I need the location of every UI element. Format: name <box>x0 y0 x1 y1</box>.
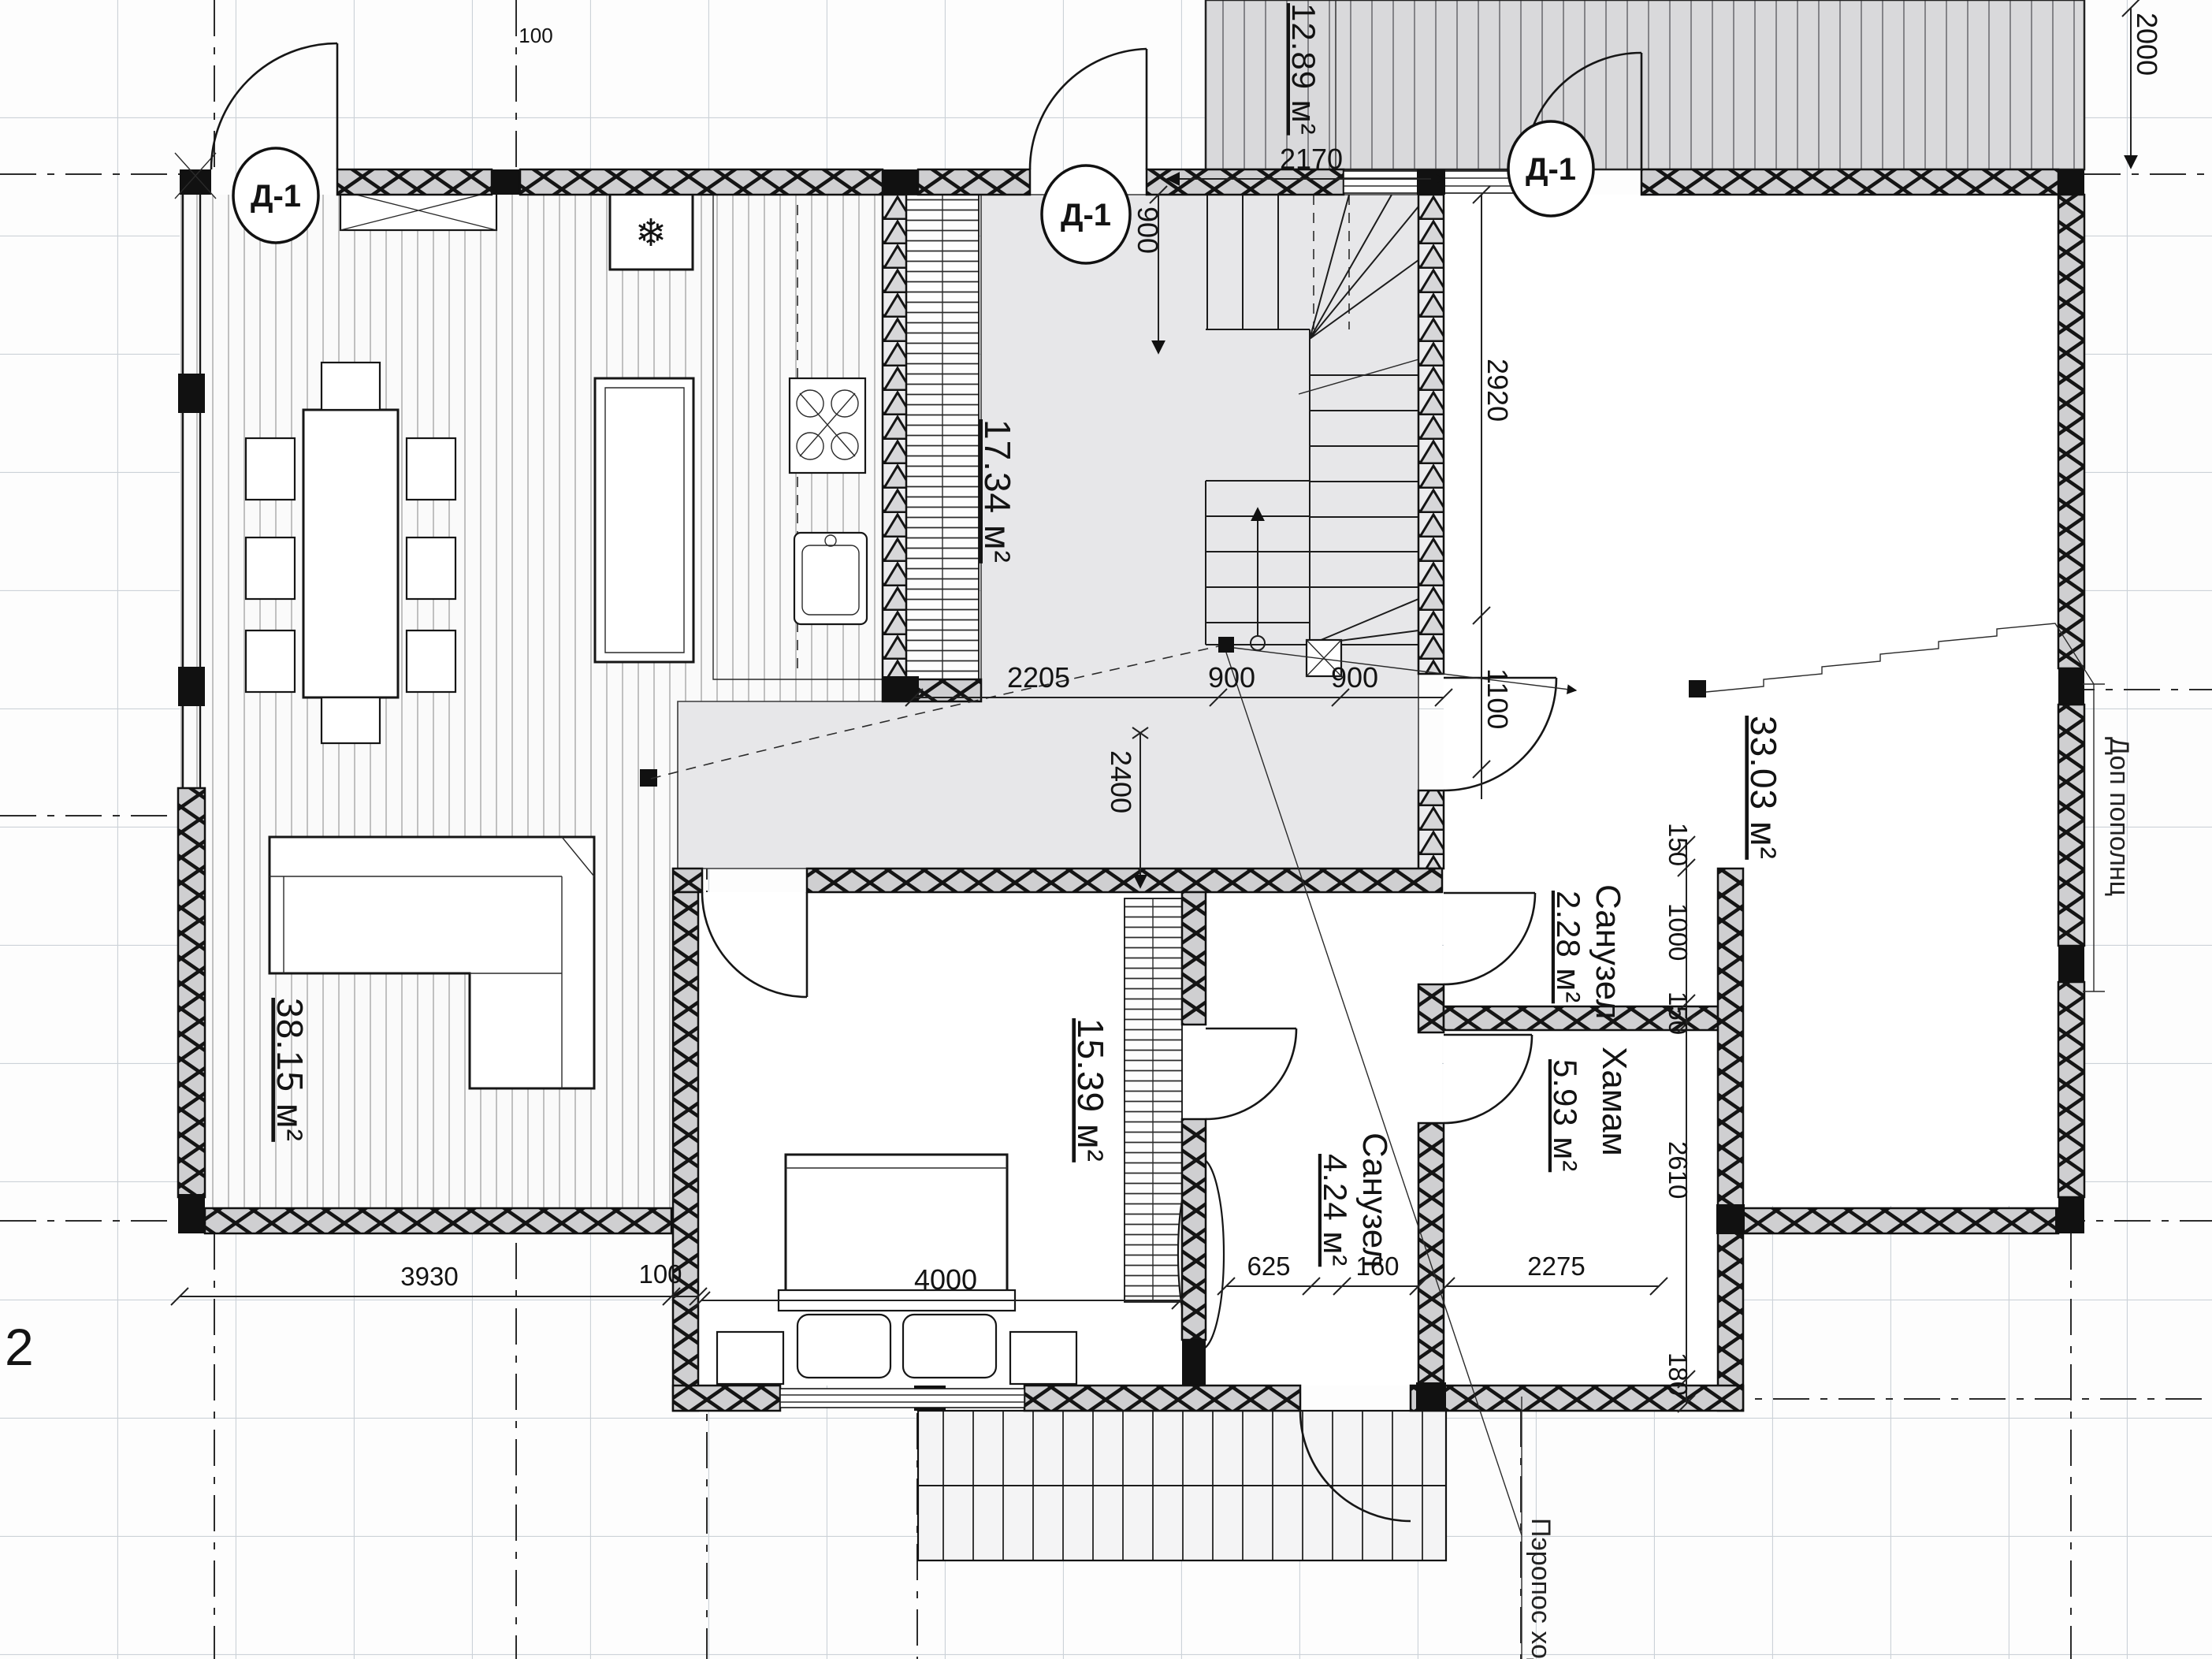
dining-chair <box>407 630 455 692</box>
junction-box <box>1218 637 1234 653</box>
dim-top-small: 100 <box>519 24 552 47</box>
bathroom-name-label: Санузел <box>1355 1133 1394 1267</box>
dining-chair <box>322 363 380 410</box>
fridge-snowflake-icon: ❄ <box>635 213 667 255</box>
junction-box <box>1689 680 1706 697</box>
dim-wc-1: 150 <box>1664 823 1693 866</box>
wc-area-label: 2.28 м² <box>1550 891 1587 1003</box>
dim-hall-3: 900 <box>1331 661 1378 694</box>
dim-bedroom-width: 4000 <box>914 1263 977 1296</box>
nightstand <box>717 1332 783 1384</box>
wall-post <box>180 169 211 195</box>
dim-bigroom-2: 1100 <box>1481 668 1514 729</box>
dining-chair <box>407 538 455 599</box>
hamam-name-label: Хамам <box>1595 1047 1634 1156</box>
living-area-label: 38.15 м² <box>270 998 310 1142</box>
kitchen-island <box>595 378 693 662</box>
axis-label-2: 2 <box>5 1318 34 1376</box>
big-room-area-label: 33.03 м² <box>1743 716 1784 860</box>
door-tag-label: Д-1 <box>251 179 301 214</box>
hall-area-label: 17.34 м² <box>977 419 1018 564</box>
dim-hall-1: 2205 <box>1007 661 1070 694</box>
dim-wc-3: 150 <box>1664 991 1693 1035</box>
floor-plan-drawing: ❄ <box>0 0 2212 1659</box>
pillow <box>797 1315 890 1378</box>
wc-name-label: Санузел <box>1589 884 1627 1019</box>
floor-plan-sheet: ❄ <box>0 0 2212 1659</box>
dim-stair-width: 900 <box>1132 206 1164 254</box>
bottom-note-label: Пэропос ход <box>1526 1518 1556 1659</box>
dim-hall-height: 2400 <box>1105 750 1137 813</box>
dim-bath-1: 625 <box>1247 1252 1290 1281</box>
door-tag-label: Д-1 <box>1526 152 1576 187</box>
dining-chair <box>322 697 380 743</box>
dim-wc-2: 1000 <box>1664 903 1693 961</box>
dining-chair <box>246 438 295 500</box>
dim-hamam-2: 180 <box>1664 1352 1693 1396</box>
bedroom-window <box>780 1389 1024 1408</box>
dining-chair <box>407 438 455 500</box>
dim-hamam-width: 2275 <box>1527 1252 1585 1281</box>
dim-hall-2: 900 <box>1208 661 1255 694</box>
dim-left-2: 100 <box>638 1259 682 1289</box>
nightstand <box>1010 1332 1076 1384</box>
bedroom-area-label: 15.39 м² <box>1070 1018 1111 1162</box>
dim-canopy-width: 2170 <box>1280 143 1343 175</box>
door-tag-label: Д-1 <box>1061 198 1111 232</box>
dim-canopy-height: 2000 <box>2131 13 2163 76</box>
right-note-label: Доп пополнц <box>2104 737 2134 896</box>
dining-chair <box>246 538 295 599</box>
dim-bigroom-1: 2920 <box>1481 359 1514 422</box>
dim-bath-2: 160 <box>1355 1252 1399 1281</box>
hamam-area-label: 5.93 м² <box>1547 1059 1584 1172</box>
dim-hamam-1: 2610 <box>1664 1141 1693 1199</box>
dim-left-1: 3930 <box>400 1262 458 1291</box>
dining-chair <box>246 630 295 692</box>
canopy-area-label: 12.89 м² <box>1285 3 1322 136</box>
pillow <box>903 1315 996 1378</box>
dining-table <box>303 410 398 697</box>
bathroom-area-label: 4.24 м² <box>1317 1154 1354 1267</box>
